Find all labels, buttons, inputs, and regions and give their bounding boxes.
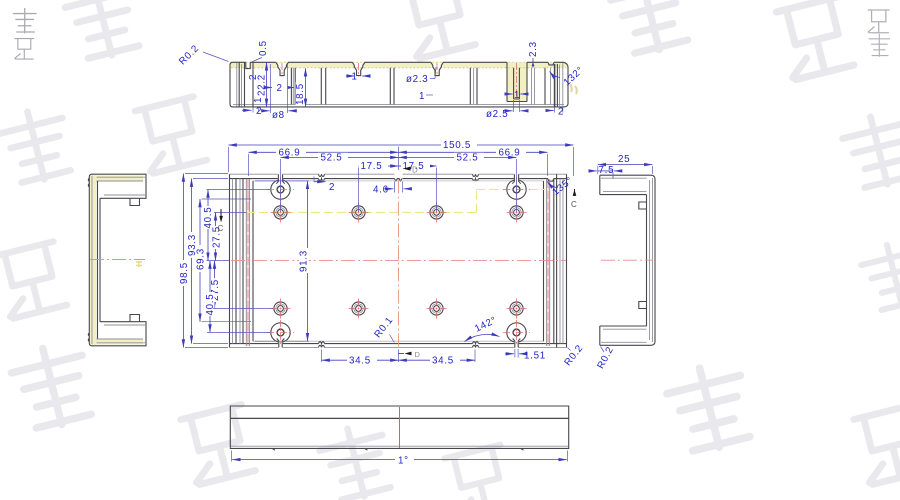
svg-text:7.5: 7.5 [599,165,615,176]
svg-text:150.5: 150.5 [443,140,471,151]
svg-text:4.6: 4.6 [373,185,389,196]
svg-text:1: 1 [352,72,358,83]
svg-text:1.51: 1.51 [524,351,546,362]
svg-text:2.3: 2.3 [528,41,539,57]
svg-text:52.5: 52.5 [321,153,343,164]
svg-text:C: C [571,200,577,209]
svg-text:ø2.5: ø2.5 [486,109,508,120]
svg-text:22.2: 22.2 [257,74,268,96]
svg-text:1: 1 [419,91,425,102]
svg-text:66.9: 66.9 [279,148,301,159]
svg-text:40.5: 40.5 [203,207,214,229]
svg-text:25: 25 [618,154,630,165]
svg-text:ø8: ø8 [272,110,285,121]
svg-text:52.5: 52.5 [457,153,479,164]
svg-text:1: 1 [253,97,264,103]
svg-text:34.5: 34.5 [349,355,371,366]
svg-text:0.5: 0.5 [258,40,269,56]
svg-text:1: 1 [514,90,520,101]
svg-text:D: D [412,166,418,175]
svg-text:ø2.3: ø2.3 [406,74,428,85]
svg-text:1°: 1° [398,456,409,467]
svg-text:2: 2 [256,106,262,117]
svg-text:17.5: 17.5 [361,161,383,172]
svg-text:2: 2 [277,83,283,94]
svg-text:18.5: 18.5 [295,83,306,105]
svg-text:2: 2 [329,182,335,193]
svg-text:D: D [415,350,421,359]
svg-text:69.3: 69.3 [196,248,207,270]
svg-text:98.5: 98.5 [179,262,190,284]
svg-text:66.9: 66.9 [499,148,521,159]
svg-text:40.5: 40.5 [205,294,216,316]
svg-text:C: C [218,224,224,233]
svg-text:2: 2 [558,107,564,118]
svg-text:34.5: 34.5 [432,355,454,366]
svg-text:91.3: 91.3 [299,250,310,272]
